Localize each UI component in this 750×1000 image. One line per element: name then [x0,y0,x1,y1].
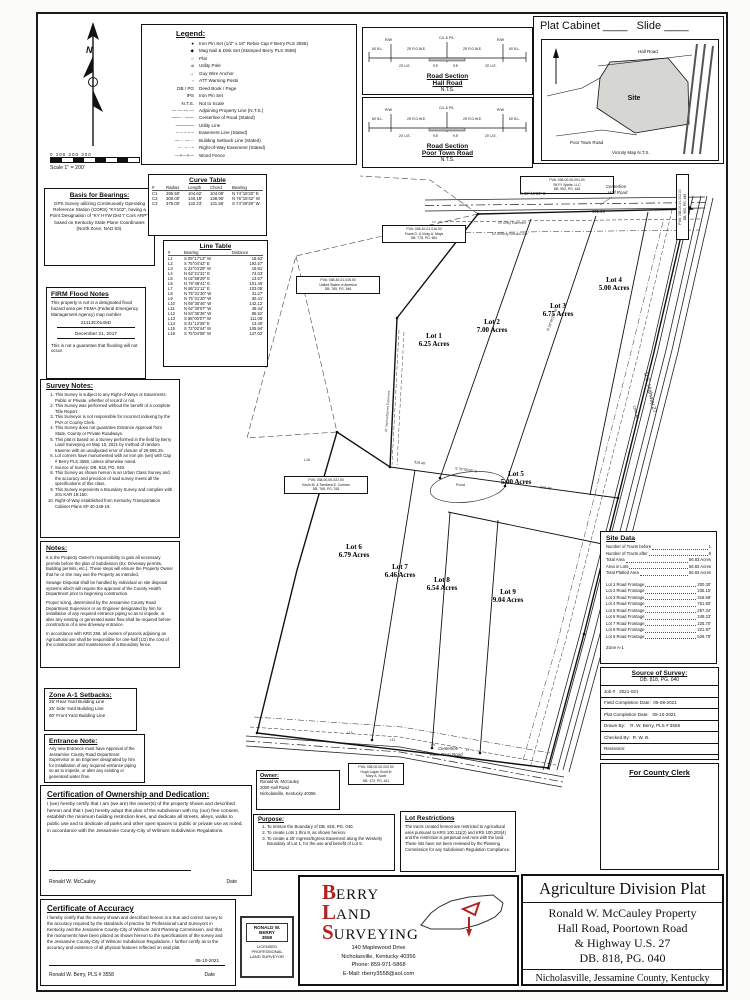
legend-item: —×—×— Wood Fence [148,152,350,159]
survey-note-item: This Survey as shown hereon is an Urban … [55,470,174,487]
pva-line: DB. 470, PG. 441 [351,779,401,784]
accuracy-signer-name: Ronald W. Berry, PLS # 3558 [49,972,114,978]
hall-road-bearing: S 89°49'09" E [520,191,546,196]
svg-text:25' R.O.W.E.: 25' R.O.W.E. [463,117,482,121]
road-section-road-name: Hall Road [363,80,532,87]
county-clerk-box: For County Clerk [600,763,719,870]
svg-text:R/W: R/W [497,108,505,112]
legend-item: – – – – – Easement Line (Stated) [148,129,350,136]
site-data-frontage-rows: Lot 1 Road Frontage200.30' Lot 2 Road Fr… [606,582,711,641]
lot-label-2: Lot 27.00 Acres [477,318,508,334]
legend-label: Utility Line [199,122,220,129]
source-of-survey-box: Source of Survey: DB. 818, PG. 040 Job #… [600,667,719,760]
legend-item: N.T.S. Not to Scale [148,100,350,107]
legend-item: – · – · – Right-of-Way Easement (Stated) [148,144,350,151]
legend-item: ● Iron Pin Set (1/2" x 18" Rebar Cap # B… [148,40,350,47]
survey-notes-box: Survey Notes: This Survey is subject to … [40,379,180,538]
legend-label: Plat [199,55,207,62]
svg-text:9.5': 9.5' [433,64,439,68]
legend-label: Building Setback Line (Stated) [199,137,261,144]
line-tag-l9: L9 [431,743,435,747]
setback-item: 25' Rear Yard Building Line [49,699,132,706]
road-section-title: Road Section [363,143,532,150]
legend-symbol-icon: — — — — [148,107,199,114]
line-table-row: L16S 75°04'08" W147.02' [168,331,263,336]
north-arrow: N [58,20,128,152]
road-section-road-name: Poor Town Road [363,150,532,157]
pva-box-east-of-hwy: PVA: 038-00-00-002.00DB. 992, PG. 445 [676,174,689,240]
svg-text:60' B.L.: 60' B.L. [372,117,383,121]
legend-label: Iron Pin Set (1/2" x 18" Rebar Cap # Ber… [199,40,308,47]
setback-item: 25' Side Yard Building Line [49,706,132,713]
legend-symbol-icon: — ·· — ·· [148,137,199,144]
plat-cabinet-box: Plat Cabinet ____ Slide ____ Hall Road S… [533,16,724,164]
survey-note-item: This Survey is subject to any Right-of-W… [55,392,174,403]
source-row: Job # 2021-021 [601,686,718,698]
purpose-list: To retrace the Boundary of DB. 818, PG. … [258,824,390,847]
setbacks-list: 25' Rear Yard Building Line25' Side Yard… [49,699,132,720]
accuracy-signature-line[interactable] [49,957,225,966]
legend-label: Centerline of Road (Stated) [199,114,255,121]
survey-note-item: Right-of-Way established from Kentucky T… [55,498,174,509]
site-data-zone: Zone A-1 [606,645,711,650]
legend-symbol-icon: N.T.S. [148,100,199,107]
svg-text:Site: Site [628,95,641,102]
svg-text:N: N [86,45,93,55]
svg-text:Poor Town Road: Poor Town Road [570,140,604,145]
legend-item: — — — — Adjoining Property Line (N.T.S.) [148,107,350,114]
ownership-signature-line[interactable] [49,862,191,871]
berry-wordmark: BERRY LAND SURVEYING [322,883,419,943]
svg-text:R/W: R/W [385,38,393,42]
legend-label: Deed Book / Page [199,85,236,92]
site-data-box: Site Data Number of Tracts before1 Numbe… [600,531,717,664]
entrance-body: Any new Entrance must have Approval of t… [49,746,140,779]
firm-body: This property is not in a designated flo… [51,300,141,318]
site-data-title: Site Data [606,535,711,542]
berry-address-line: Phone: 859-971-5868 [300,961,457,969]
road-section-nts: N.T.S. [363,87,532,93]
svg-text:25' R.O.W.E.: 25' R.O.W.E. [407,47,426,51]
survey-note-item: Lot corners have monumented with an iron… [55,453,174,464]
road-section-title: Road Section [363,73,532,80]
notes-paragraph: Sewage Disposal shall be handled by indi… [46,580,174,597]
poortown-centerline-label2: Poor Town Road [430,752,463,757]
vicinity-map: Hall Road Site Poor Town Road Vicinity M… [541,39,719,161]
pva-box-mays: PVA: 038-40-01-016.00Frank D. & Vicky A.… [382,225,466,243]
svg-text:20' U.E.: 20' U.E. [485,134,497,138]
ownership-signer-name: Ronald W. McCauley [49,879,96,885]
ownership-title: Certification of Ownership and Dedicatio… [47,790,245,799]
kentucky-outline-icon [417,891,505,943]
lot-label-3: Lot 36.75 Acres [543,302,574,318]
ownership-date-label: Date [226,879,237,885]
survey-notes-title: Survey Notes: [46,383,174,390]
plat-cabinet-label: Plat Cabinet [540,20,600,32]
source-row: Plat Completion Date: 05-10-2021 [601,709,718,721]
line-tag-l11: L11 [390,738,395,742]
curve-table-rows: C1295.50'104.62'104.08'N 74°18'20" E C23… [152,191,263,206]
legend-title: Legend: [176,29,350,38]
berry-address-line: 140 Maplewood Drive [300,944,457,952]
legend-label: Adjoining Property Line (N.T.S.) [199,107,263,114]
poortown-centerline-label: Centerline [438,746,458,751]
source-title: Source of Survey: [601,668,718,677]
accuracy-body: I hereby certify that the survey shown a… [47,915,229,951]
line-table-box: Line Table #BearingDistance L1S 09°17'13… [163,240,268,367]
legend-item: — ·· — ·· Building Setback Line (Stated) [148,137,350,144]
svg-text:R/W: R/W [497,38,505,42]
basis-title: Basis for Bearings: [49,192,150,199]
legend-symbol-icon: – · – · – [148,144,199,151]
svg-text:C/L & P/L: C/L & P/L [439,106,454,110]
legend-symbol-icon: ◆ [148,47,199,54]
hall-road-centerline-label: Centerline [606,184,626,189]
svg-text:20' U.E.: 20' U.E. [399,134,411,138]
stamp-number: 3558 [247,935,287,940]
legend-label: Easement Line (Stated) [199,129,247,136]
survey-note-item: This Surveyor is not responsible for inc… [55,414,174,425]
svg-text:60' B.L.: 60' B.L. [509,47,520,51]
line-table-rows: L1S 09°17'13" W18.62' L2S 75°04'42" E192… [168,256,263,336]
legend-item: ○ Plat [148,55,350,62]
title-block-line: DB. 818, PG. 040 [523,951,722,966]
accuracy-cert-box: Certificate of Accuracy I hereby certify… [40,899,236,986]
lot-restrictions-title: Lot Restrictions [405,815,511,822]
svg-text:25' R.O.W.E.: 25' R.O.W.E. [463,47,482,51]
owner-lines: Ronald W. McCauley2000 Hall RoadNicholas… [260,779,336,797]
legend-symbol-icon: —— · —— [148,114,199,121]
accuracy-title: Certificate of Accuracy [47,904,229,913]
legend-symbol-icon: ⌀ [148,62,199,69]
site-data-row: Total Platted Area56.83 Acres [606,570,711,577]
road-section-poortown: R/W C/L & P/L R/W 60' B.L. 25' R.O.W.E. … [362,97,533,168]
svg-text:Hall Road: Hall Road [638,49,658,54]
legend-label: Guy Wire Anchor [199,70,234,77]
plat-title: Agriculture Division Plat [523,876,722,899]
setbacks-box: Zone A-1 Setbacks: 25' Rear Yard Buildin… [44,688,137,731]
scale-caption: Scale 1" = 200' [50,165,150,171]
title-block-line: Ronald W. McCauley Property [523,906,722,921]
svg-text:9.5': 9.5' [433,134,439,138]
legend-label: Utility Pole [199,62,221,69]
legend-label: Iron Pin Set [199,92,223,99]
svg-text:20' U.E.: 20' U.E. [485,64,497,68]
road-section-hall: R/W C/L & P/L R/W 60' B.L. 25' R.O.W.E. … [362,27,533,95]
lot-restrictions-box: Lot Restrictions The tracts created here… [400,811,516,872]
firm-flood-notes-box: FIRM Flood Notes This property is not in… [46,287,146,379]
legend-item: ———— Utility Line [148,122,350,129]
road-section-nts: N.T.S. [363,157,532,163]
pva-box-scott: PVA: 038-00-00-020.00Hugh Logan Scott II… [348,763,404,785]
pva-line: DB. 785, PG. 546 [299,287,377,292]
berry-address-line: Nicholasville, Kentucky 40356 [300,953,457,961]
title-block-line: Hall Road, Poortown Road [523,921,722,936]
plat-cabinet-blank[interactable]: ____ [603,20,627,32]
lot-label-7: Lot 76.46 Acres [385,563,416,579]
firm-date: December 21, 2017 [57,332,135,339]
line-tag-l16: L16 [304,458,310,462]
firm-footer: This is not a guarantee that flooding wi… [51,343,141,355]
stamp-land-surveyor: LAND SURVEYOR [242,954,292,959]
svg-text:25' R.O.W.E.: 25' R.O.W.E. [407,117,426,121]
purpose-title: Purpose: [258,817,390,823]
survey-note-item: This plat is based on a Survey performed… [55,437,174,454]
survey-note-item: This Survey does not guarantee Entrance … [55,425,174,436]
notes-title: Notes: [46,545,174,552]
berry-land-surveying-block: BERRY LAND SURVEYING 140 Maplewood Drive… [298,875,519,986]
lot-label-1: Lot 16.25 Acres [419,332,450,348]
purpose-box: Purpose: To retrace the Boundary of DB. … [253,814,395,871]
title-block-line: & Highway U.S. 27 [523,936,722,951]
legend-symbol-icon: ● [148,40,199,47]
legend-symbol-icon: IPS [148,92,199,99]
line-table-title: Line Table [168,243,263,250]
slide-label: Slide [637,20,661,32]
pva-line: DB. 778, PG. 681 [385,236,463,241]
legend-item: ◆ Mag Nail & Disk Set (Stamped Berry PLS… [148,47,350,54]
notes-box: Notes: It is the Property Owner's respon… [40,541,180,668]
survey-notes-list: This Survey is subject to any Right-of-W… [46,392,174,509]
ownership-body: I (we) hereby certify that I am (we are)… [47,802,245,836]
legend-label: Mag Nail & Disk Set (Stamped Berry PLS 3… [199,47,296,54]
svg-text:20' U.E.: 20' U.E. [399,64,411,68]
pva-box-corman: PVA: 038-00-00-022.00Kevin M. & Tambera … [284,476,368,494]
legend-symbol-icon: ▫ [148,77,199,84]
svg-text:9.5': 9.5' [453,64,459,68]
curve-table-box: Curve Table #RadiusLengthChordBearing C1… [148,174,267,236]
notes-paragraph: It is the Property Owner's responsibilit… [46,555,174,577]
legend-item: —— · —— Centerline of Road (Stated) [148,114,350,121]
legend-symbol-icon: ○ [148,55,199,62]
legend-label: Not to Scale [199,100,224,107]
basis-body: GPS Survey utilizing Continuously Operat… [49,201,150,232]
survey-note-item: This Survey represents a Boundary Survey… [55,487,174,498]
surveyor-stamp: RONALD W. BERRY 3558 LICENSED PROFESSION… [240,916,294,978]
svg-text:Vicinity Map N.T.S.: Vicinity Map N.T.S. [612,150,650,155]
notes-paragraph: Proper sizing, determined by the Jessami… [46,600,174,628]
svg-text:60' B.L.: 60' B.L. [509,117,520,121]
survey-note-item: This Survey was performed without the be… [55,403,174,414]
hall-road-centerline-label2: Hall Road [608,190,627,195]
source-subtitle: DB. 818, PG. 040 [601,677,718,686]
county-clerk-title: For County Clerk [601,764,718,777]
lot-restrictions-body: The tracts created hereon are restricted… [405,824,511,852]
ownership-cert-box: Certification of Ownership and Dedicatio… [40,785,252,896]
legend-item: IPS Iron Pin Set [148,92,350,99]
entrance-note-box: Entrance Note: Any new Entrance must hav… [44,734,145,783]
pva-line: DB. 992, PG. 445 [683,177,688,237]
legend-box: Legend: ● Iron Pin Set (1/2" x 18" Rebar… [141,24,357,165]
plat-sheet: N 0 100 200 300 Scale 1" = 200' Legend: … [0,0,750,1000]
pva-box-usa: PVA: 038-40-01-015.00United States of Am… [296,276,380,294]
building-setback-label: 60' Building Setback Line [492,232,528,236]
svg-text:C/L & P/L: C/L & P/L [439,36,454,40]
firm-map-number: 21113C0145D [57,321,135,328]
scale-bar: 0 100 200 300 Scale 1" = 200' [50,152,150,171]
slide-blank[interactable]: ____ [664,20,688,32]
line-tag-l13: L13 [347,731,353,735]
site-data-rows: Number of Tracts before1 Number of Tract… [606,544,711,577]
legend-symbol-icon: → [148,70,199,77]
lot-label-4: Lot 45.00 Acres [599,276,630,292]
pond-label: Pond [456,483,465,487]
svg-text:R/W: R/W [385,108,393,112]
source-row: Drawn By: R. W. Berry, PLS # 3558 [601,721,718,733]
legend-symbol-icon: ———— [148,122,199,129]
legend-symbol-icon: —×—×— [148,152,199,159]
title-block: Agriculture Division Plat Ronald W. McCa… [521,874,724,986]
notes-paragraphs: It is the Property Owner's responsibilit… [46,555,174,648]
legend-item: → Guy Wire Anchor [148,70,350,77]
accuracy-date-label: Date [204,972,215,978]
lot-label-8: Lot 86.54 Acres [427,576,458,592]
entrance-title: Entrance Note: [49,738,140,745]
lot-label-5: Lot 55.00 Acres [501,470,532,486]
setback-item: 60' Front Yard Building Line [49,713,132,720]
legend-item: ⌀ Utility Pole [148,62,350,69]
purpose-item: To create a 25' Ingress/Egress Easement … [267,836,390,848]
source-rows: Job # 2021-021Field Completion Date: 05-… [601,686,718,755]
line-tag-l7: L7 [466,748,470,752]
legend-symbol-icon: DB / PG [148,85,199,92]
pva-line: DB. 768, PG. 318 [287,487,365,492]
lot-label-9: Lot 99.04 Acres [493,588,524,604]
source-row: Field Completion Date: 05-08-2021 [601,698,718,710]
source-row: Checked By: R. W. B. [601,732,718,744]
berry-address-line: E-Mail: rberry3558@aol.com [300,970,457,978]
basis-for-bearings-box: Basis for Bearings: GPS Survey utilizing… [44,188,155,266]
legend-label: Wood Fence [199,152,225,159]
source-row: Revisions: [601,744,718,756]
plat-cabinet-header: Plat Cabinet ____ Slide ____ [534,17,723,33]
lot-label-6: Lot 66.79 Acres [339,543,370,559]
notes-paragraph: In accordance with KRS 256, all owners o… [46,631,174,648]
svg-text:60' B.L.: 60' B.L. [372,47,383,51]
title-block-footer: Nicholasville, Jessamine County, Kentuck… [523,970,722,984]
legend-item: ▫ ATT Warning Posts [148,77,350,84]
curve-table-title: Curve Table [152,177,263,184]
title-block-lines: Ronald W. McCauley PropertyHall Road, Po… [523,903,722,966]
owner-line: Nicholasville, Kentucky 40356 [260,791,336,797]
site-data-row: Lot 9 Road Frontage528.79' [606,634,711,641]
owner-box: Owner: Ronald W. McCauley2000 Hall RoadN… [256,770,340,810]
curve-table-row: C3375.00'132.23'131.55'S 74°28'39" W [152,201,263,206]
legend-label: Right-of-Way Easement (Stated) [199,144,265,151]
legend-item: DB / PG Deed Book / Page [148,85,350,92]
firm-title: FIRM Flood Notes [51,291,141,298]
setbacks-title: Zone A-1 Setbacks: [49,692,132,699]
pva-line: PVA: 038-00-00-020.00 [351,765,401,770]
hall-road-distance: 939.93' [592,209,606,214]
legend-label: ATT Warning Posts [199,77,238,84]
legend-symbol-icon: – – – – – [148,129,199,136]
berry-address: 140 Maplewood DriveNicholasville, Kentuc… [300,944,457,978]
utility-easement-label: 20' Utility Easement [498,221,526,225]
legend-items: ● Iron Pin Set (1/2" x 18" Rebar Cap # B… [148,40,350,159]
svg-text:9.5': 9.5' [453,134,459,138]
